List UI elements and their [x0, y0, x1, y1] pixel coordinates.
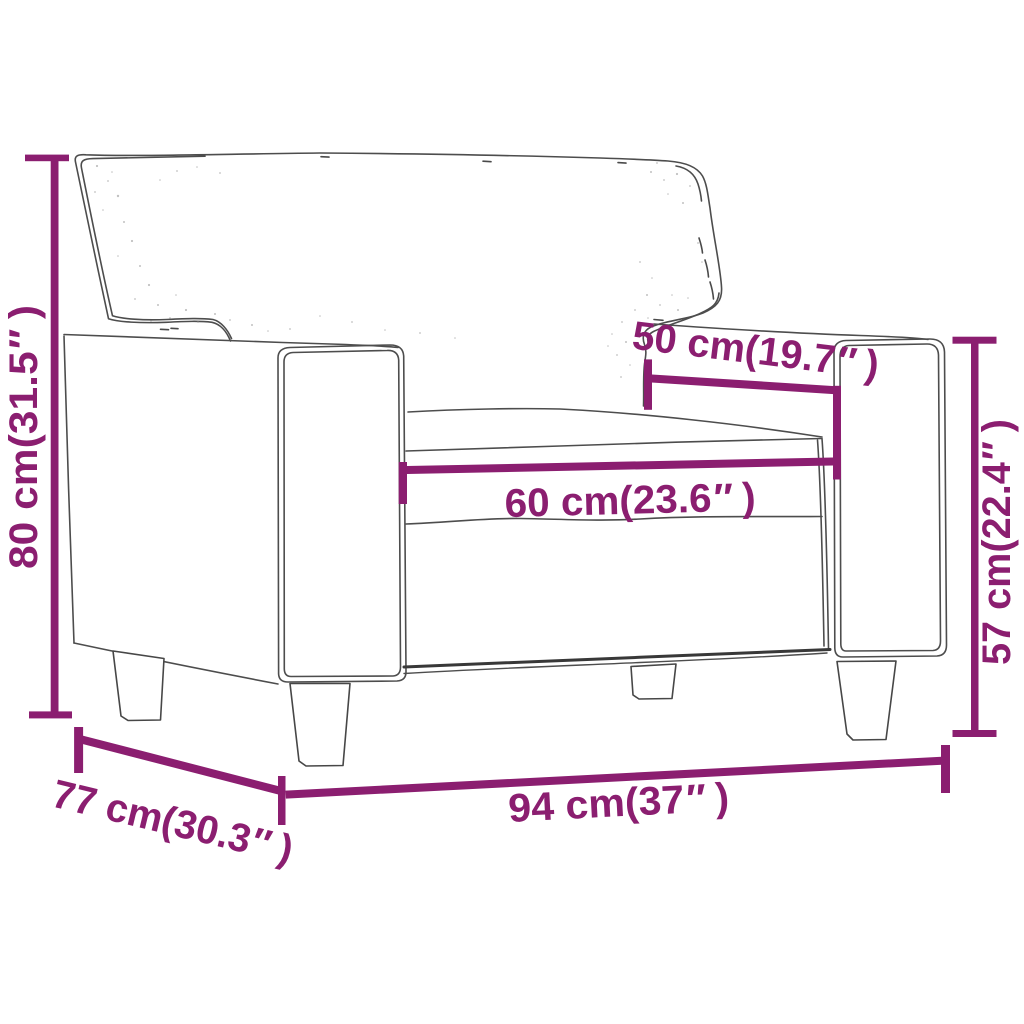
svg-text:60 cm(23.6″ ): 60 cm(23.6″ ): [504, 475, 756, 526]
svg-text:57 cm(22.4″ ): 57 cm(22.4″ ): [975, 419, 1019, 665]
svg-text:80 cm(31.5″ ): 80 cm(31.5″ ): [2, 305, 46, 569]
